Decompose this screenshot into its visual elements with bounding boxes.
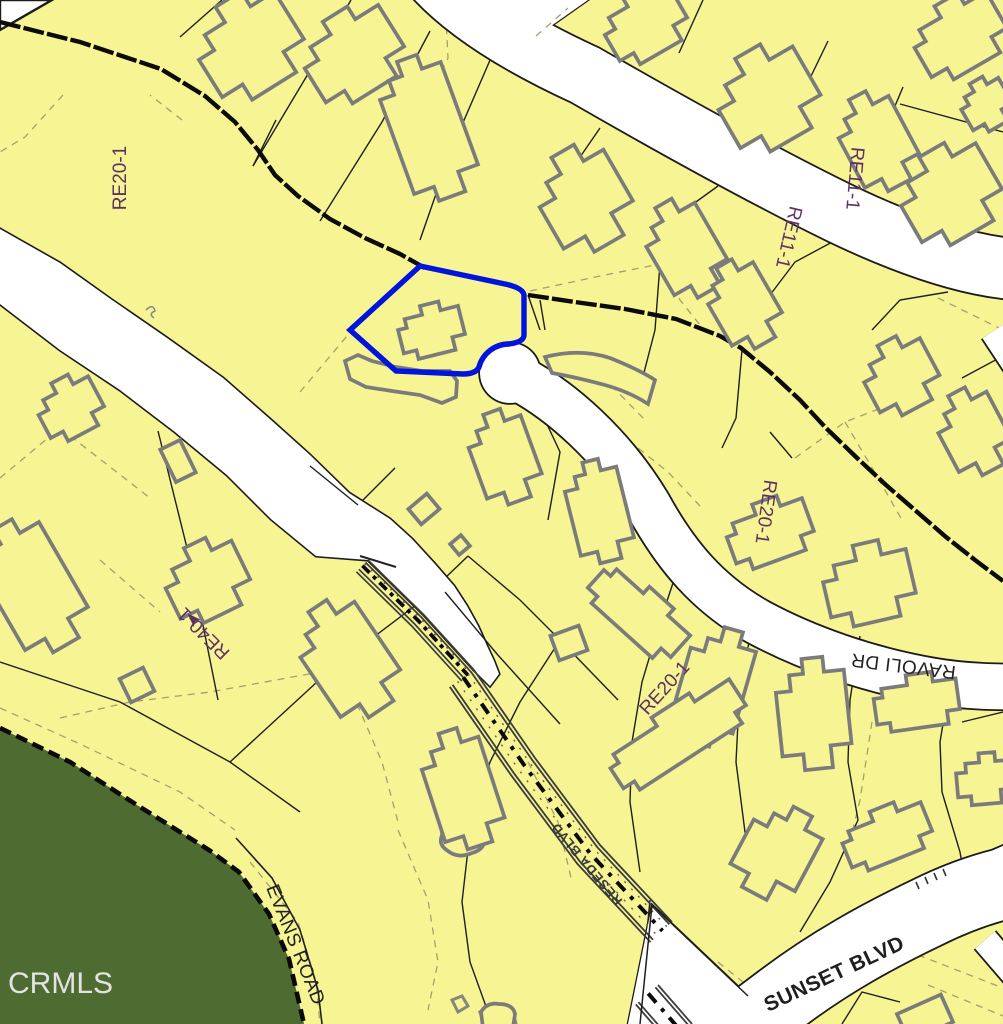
svg-text:RE20-1: RE20-1 — [110, 146, 131, 210]
svg-text:CRMLS: CRMLS — [8, 967, 113, 1000]
